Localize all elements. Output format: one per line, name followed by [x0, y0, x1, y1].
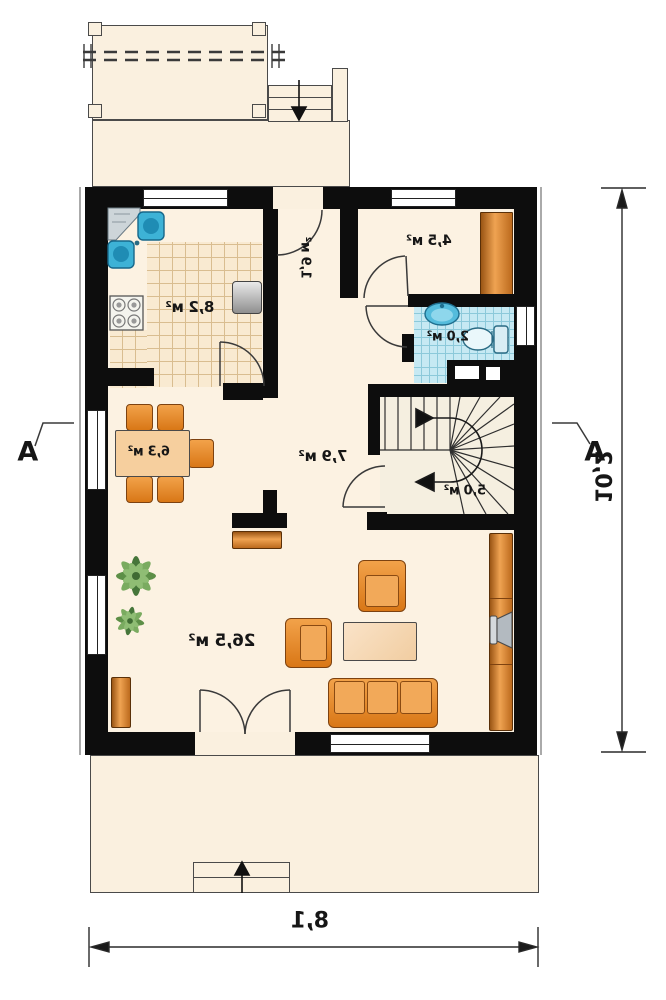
pergola-post [88, 104, 102, 118]
shower-tile [414, 361, 447, 383]
back-terrace [92, 120, 350, 187]
pergola-post [88, 22, 102, 36]
wall-stairs-top [368, 384, 514, 397]
room-area-label: 4,5 м² [406, 233, 451, 249]
wall-stairs-door-stub [367, 512, 387, 530]
room-area-label: 6,3 м² [128, 445, 170, 460]
chair [157, 404, 184, 431]
front-terrace [90, 755, 539, 893]
side-cabinet [111, 677, 131, 728]
pergola-post [252, 22, 266, 36]
terrace-door-gap [195, 732, 295, 755]
coffee-table [343, 622, 417, 661]
wall-kitchen-stub [223, 383, 263, 400]
tv-cabinet [489, 533, 513, 731]
step-line [194, 877, 289, 878]
back-steps [268, 85, 332, 122]
window-living-bottom [330, 734, 430, 753]
step-line [269, 109, 331, 110]
room-area-label: 1,9 м² [298, 237, 313, 279]
chair [157, 476, 184, 503]
wall-kitchen-stub [108, 368, 154, 386]
armchair [358, 560, 406, 612]
room-area-label: 2,0 м² [427, 330, 469, 345]
front-steps [193, 862, 290, 893]
chair [126, 404, 153, 431]
back-steps-railing [332, 68, 348, 122]
section-mark-left [35, 423, 74, 446]
wall-stairs-bottom [387, 514, 514, 530]
room-area-label: 26,5 м² [188, 631, 255, 651]
chair [126, 476, 153, 503]
section-letter-right: A [585, 437, 606, 468]
wall-living-stub-h [232, 513, 287, 528]
fridge [232, 281, 262, 314]
window-living-left [87, 575, 106, 655]
wardrobe [480, 212, 513, 297]
entrance-door-gap [273, 187, 323, 209]
armchair [285, 618, 332, 668]
window-kitchen [143, 189, 228, 207]
floor-plan: 8,2 м² 1,9 м² 4,5 м² 2,0 м² 6,3 м² 7,9 м… [0, 0, 666, 1000]
room-area-label: 8,2 м² [166, 298, 215, 316]
window-storage [391, 189, 456, 207]
chimney-block [447, 360, 514, 384]
room-area-label: 7,9 м² [299, 447, 348, 465]
wall-bathroom-top [408, 294, 514, 307]
wall-kitchen-vestibule [263, 209, 278, 398]
wall-bathroom-stub [402, 334, 414, 362]
pergola-post [252, 104, 266, 118]
chair [188, 439, 214, 468]
window-bathroom [516, 306, 535, 346]
vent-opening [455, 366, 479, 379]
dimension-width-label: 8,1 [291, 909, 329, 934]
wall-vestibule-storage [340, 209, 358, 298]
wall-bottom [85, 732, 537, 755]
wall-stairs-left [368, 384, 380, 455]
shelf-cabinet [232, 531, 282, 549]
section-letter-left: A [18, 437, 39, 468]
window-dining [87, 410, 106, 490]
sofa [328, 678, 438, 728]
step-line [269, 97, 331, 98]
pergola-outline [92, 25, 268, 120]
room-area-label: 5,0 м² [444, 484, 486, 499]
wall-right [514, 209, 537, 732]
vent-opening [486, 367, 500, 380]
